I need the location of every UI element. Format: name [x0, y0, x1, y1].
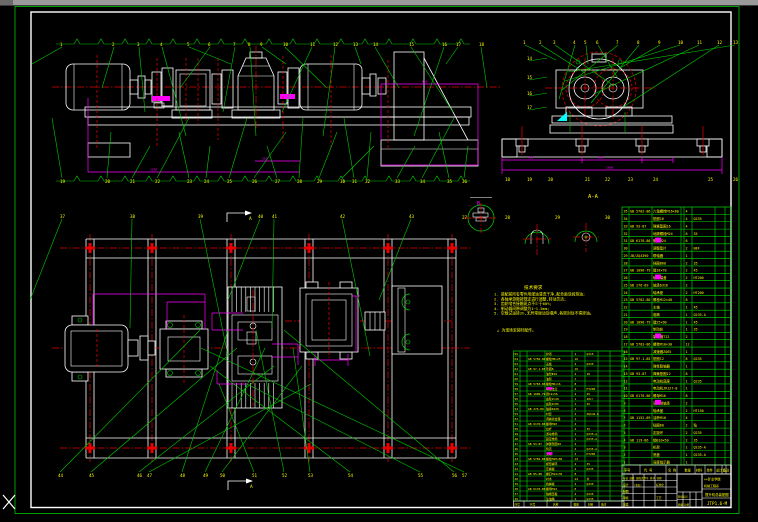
bom-header-cell: 数量 [685, 467, 692, 472]
bom-cell: 弹性联轴器 [653, 364, 671, 369]
balloon-number: 29 [555, 215, 561, 220]
bom-cell: 联轴器 [653, 253, 664, 258]
bom-cell: 轴承6316 [653, 282, 668, 287]
leader-line [32, 47, 62, 64]
dim-text: 650 [422, 80, 428, 84]
bom-header-cell: 备注 [723, 467, 730, 472]
leader-line [319, 132, 337, 178]
detail-b-label: B [477, 201, 480, 207]
leader-line [344, 118, 354, 178]
dim-text: 1250 [150, 168, 157, 172]
technical-notes: 技术要求1. 装配前所有零件用煤油清洗干净,配合面涂润滑油;2. 各轴承游隙按规… [494, 284, 594, 333]
bom-cell: GB 5782-86 [630, 298, 650, 302]
bom-cell: 21 [624, 313, 628, 317]
leader-line [355, 47, 361, 64]
balloon-number: 22 [155, 179, 161, 184]
bom-cell: 16 [575, 367, 579, 371]
bom-header-cell: 数量 [574, 502, 580, 506]
title-block-cell: 审核 [623, 496, 629, 500]
leader-line [285, 47, 327, 88]
bom-cell: 油管Φ10 [546, 371, 557, 376]
bom-cell: 制动轮 [653, 327, 664, 332]
title-block-cell: 阶段标记 [678, 495, 688, 499]
bom-cell: HT150 [694, 409, 704, 413]
leader-line [411, 47, 453, 112]
leader-line [367, 132, 371, 178]
bom-cell: 螺栓M10×30 [653, 341, 672, 346]
section-label: A-A [588, 194, 599, 200]
bom-cell: 螺钉M12×30 [546, 471, 562, 476]
cad-viewport[interactable]: A-A B [0, 0, 758, 522]
bom-cell: 螺栓M12×40 [653, 297, 672, 302]
bom-cell: 2 [686, 409, 688, 413]
balloon-number: 57 [462, 473, 468, 478]
bom-cell: 楔形绳环 [546, 461, 558, 466]
balloon-number: 14 [373, 42, 379, 47]
bom-cell: 37 [515, 492, 519, 496]
balloon-number: 30 [340, 179, 346, 184]
bom-cell: GB 1096-79 [630, 320, 650, 324]
bom-cell: 2 [575, 407, 577, 411]
title-block-cell: (签名) [634, 483, 642, 487]
bom-cell: 51 [515, 422, 519, 426]
bom-cell: 28 [624, 261, 628, 265]
bom-cell: 2 [575, 462, 577, 466]
bom-cell: 35 [587, 427, 591, 431]
bom-cell: 10 [587, 372, 591, 376]
end-section-view: A-A [502, 52, 722, 200]
bom-cell: 1 [686, 446, 688, 450]
bom-header-cell: 材料 [588, 502, 594, 506]
svg-text:A: A [250, 484, 253, 490]
bom-cell: 垫圈12 [653, 356, 664, 361]
bom-cell: 39 [515, 482, 519, 486]
balloon-number: 22 [605, 177, 611, 182]
balloon-number: 23 [187, 179, 193, 184]
balloon-number: 29 [317, 179, 323, 184]
bom-cell: 螺栓M8×25 [546, 356, 561, 361]
bom-cell: 2 [686, 276, 688, 280]
section-arrow-top: A [227, 211, 252, 223]
bom-cell: 1 [686, 379, 688, 383]
bom-cell: 4 [686, 217, 688, 221]
bom-cell: 1 [686, 350, 688, 354]
bom-cell: 59 [515, 382, 519, 386]
bom-cell: 2 [575, 392, 577, 396]
bom-cell: Q235-A [587, 447, 598, 451]
bom-cell: 电动机JR127-8 [653, 386, 677, 391]
bom-cell: 8 [686, 357, 688, 361]
bom-cell: 45 [515, 452, 519, 456]
dim-text: 800 [598, 156, 604, 160]
bom-cell: 2 [686, 283, 688, 287]
balloon-number: 3 [553, 40, 556, 45]
bom-cell: 2 [575, 482, 577, 486]
bom-table-outline [622, 207, 731, 465]
bom-cell: 齿轮Z=85 [546, 401, 559, 406]
leader-line [481, 47, 487, 88]
bom-cell: 18 [624, 335, 628, 339]
balloon-number: 16 [527, 91, 533, 96]
leader-line [299, 118, 303, 178]
bom-cell: 油泵 [546, 376, 552, 381]
bom-cell: 减速器ZQ65 [653, 349, 671, 354]
title-block-cell: JTP1.6-M [707, 501, 728, 506]
bom-cell: 40Cr [587, 397, 594, 401]
balloon-number: 18 [505, 177, 511, 182]
bom-cell: 16 [575, 357, 579, 361]
title-block-cell: 工艺 [656, 496, 662, 500]
balloon-number: 52 [282, 473, 288, 478]
bom-cell: 2 [686, 401, 688, 405]
bom-cell: GB 119-86 [630, 438, 648, 442]
bom-cell: 35 [694, 438, 698, 442]
bom-cell: 六角螺栓M16×60 [653, 209, 679, 214]
bom-cell: 62 [515, 367, 519, 371]
bom-cell: 42 [515, 467, 519, 471]
bom-cell: Q235-A [694, 446, 706, 450]
bom-cell: 65 [515, 352, 519, 356]
balloon-number: 41 [272, 214, 278, 219]
bom-header-cell: 序号 [624, 467, 630, 472]
bom-cell: 38 [515, 487, 519, 491]
material-box [677, 474, 702, 492]
bom-cell: Q235 [694, 357, 702, 361]
title-block-cell: 制图 [623, 490, 629, 494]
bom-cell: Q235 [587, 467, 594, 471]
bom-cell: 48 [515, 437, 519, 441]
leader-line [180, 47, 210, 88]
balloon-number: 55 [418, 473, 424, 478]
bom-cell: 轴承6220 [546, 406, 559, 411]
balloon-number: 50 [220, 473, 226, 478]
bom-cell: 压绳板 [546, 466, 555, 471]
balloon-number: 24 [653, 177, 659, 182]
leader-line [422, 118, 454, 178]
balloon-number: 18 [479, 42, 485, 47]
balloon-number: 2 [539, 40, 542, 45]
bom-cell: 8 [575, 487, 577, 491]
bom-cell: 19 [624, 328, 628, 332]
balloon-number: 40 [258, 214, 264, 219]
bom-cell: 2 [575, 492, 577, 496]
balloon-number: 27 [275, 179, 281, 184]
bom-cell: 筒壳 [546, 446, 552, 451]
balloon-number: 5 [584, 40, 587, 45]
bom-cell: 1 [686, 387, 688, 391]
bom-cell: 机架 [653, 445, 660, 450]
bom-cell: 注油嘴 [546, 496, 555, 501]
balloon-number: 13 [353, 42, 359, 47]
bom-cell: 12 [686, 342, 690, 346]
bom-cell: 56 [515, 397, 519, 401]
cad-application-window: A-A B [0, 0, 758, 522]
bom-cell: Q235 [694, 217, 702, 221]
bom-cell: Q235-A [694, 453, 706, 457]
balloon-number: 17 [527, 105, 533, 110]
dim-text: 1600 [606, 166, 613, 170]
bom-cell: 挡圈B60 [653, 260, 666, 265]
bom-cell: 固定卷筒 [546, 436, 558, 441]
bom-cell: 35 [587, 462, 591, 466]
bom-cell: 6 [686, 232, 688, 236]
bom-cell: GB 85-88 [528, 472, 542, 476]
bom-cell: 盖板 [546, 361, 552, 366]
leader-line [375, 47, 399, 88]
bom-cell: 4 [575, 467, 577, 471]
bom-cell: GB 1152-89 [630, 416, 650, 420]
bom-cell: 20 [624, 320, 628, 324]
leader-line [397, 146, 415, 178]
leader-line [130, 219, 132, 328]
leader-line [623, 45, 719, 107]
balloon-number: 11 [310, 42, 316, 47]
detail-circle-b: B [464, 198, 498, 234]
balloon-number: 38 [130, 214, 136, 219]
bom-cell: GB 5782-86 [528, 357, 546, 361]
bom-cell: 2 [686, 291, 688, 295]
plan-view: A A [52, 211, 470, 491]
balloon-number: 21 [585, 177, 591, 182]
balloon-number: 42 [340, 214, 346, 219]
detail-views: B [464, 198, 599, 256]
balloon-number: 43 [409, 214, 415, 219]
balloon-number: 35 [447, 179, 453, 184]
window-titlebar-strip [0, 0, 758, 6]
bom-cell: 1 [686, 320, 688, 324]
bom-cell: Q235 [694, 431, 702, 435]
balloon-number: 13 [733, 40, 739, 45]
bom-cell: 1 [686, 460, 688, 464]
bom-cell: 45 [694, 320, 698, 324]
bom-cell: 54 [515, 407, 519, 411]
balloon-number: 49 [203, 473, 209, 478]
bom-cell: 螺母M16 [653, 393, 666, 398]
balloon-number: 12 [717, 40, 723, 45]
bom-cell: GB 5782-86 [630, 210, 650, 214]
bom-cell: Q235 [587, 362, 594, 366]
bom-cell: 弹簧垫圈20 [546, 441, 561, 446]
balloon-number: 34 [420, 179, 426, 184]
balloon-number: 9 [658, 40, 661, 45]
bom-cell: 8 [575, 472, 577, 476]
bom-cell: 定距环 [653, 430, 664, 435]
bom-cell: 1 [575, 352, 577, 356]
bom-cell: 22 [624, 306, 628, 310]
bom-cell: 32 [624, 232, 628, 236]
bom-cell: 键25×90 [653, 319, 667, 324]
bom-cell: 毡圈60 [653, 423, 664, 428]
bom-cell: 58 [515, 387, 519, 391]
bom-header-cell: 名 称 [668, 467, 677, 472]
bom-cell: 木 [587, 476, 590, 481]
title-block-cell: 批准 [623, 503, 629, 507]
bom-cell: 底盘 [653, 452, 660, 457]
bom-cell: 调绳离合器 [546, 416, 561, 421]
bom-cell: 护罩 [546, 351, 552, 356]
leader-line [52, 118, 62, 178]
bom-cell: 29 [624, 254, 628, 258]
bom-cell: 55 [515, 402, 519, 406]
bom-cell: 1 [575, 437, 577, 441]
leader-line [555, 45, 614, 86]
leader-line [598, 45, 617, 77]
bom-cell: 17 [624, 342, 628, 346]
bom-header [622, 465, 731, 474]
balloon-number: 39 [198, 214, 204, 219]
bom-cell: 8 [686, 298, 688, 302]
balloon-number: 10 [283, 42, 289, 47]
bom-header-cell: 代号 [530, 502, 536, 506]
bom-cell: HT200 [694, 276, 704, 280]
dim-text: 400 [528, 156, 534, 160]
bom-cell: 1 [686, 306, 688, 310]
balloon-number: 47 [147, 473, 153, 478]
bom-cell: 1 [575, 377, 577, 381]
bom-cell: 8 [575, 382, 577, 386]
bom-cell: HT200 [587, 387, 596, 391]
bom-cell: 53 [515, 412, 519, 416]
bom-cell: Q215 [587, 352, 594, 356]
anchor-bolts [516, 126, 709, 155]
bom-cell: Q235 [587, 482, 594, 486]
bom-cell: 2 [575, 412, 577, 416]
bom-cell: 2 [686, 335, 688, 339]
bom-cell: 1 [686, 365, 688, 369]
bom-cell: 33 [624, 224, 628, 228]
bom-cell: 4 [686, 416, 688, 420]
balloon-number: 4 [573, 40, 576, 45]
leader-line [157, 118, 189, 178]
bom-cell: 衬木 [546, 476, 552, 481]
bom-cell: 45 [587, 402, 591, 406]
balloon-number: 15 [409, 42, 415, 47]
bom-cell: 垫圈16 [653, 216, 664, 221]
bom-cell: 57 [515, 392, 519, 396]
leader-line [262, 47, 286, 64]
bom-cell: 63 [515, 362, 519, 366]
bom-cell: 6 [686, 239, 688, 243]
bom-cell: 43 [515, 462, 519, 466]
bom-cell: 46 [515, 447, 519, 451]
balloon-number: 28 [505, 215, 511, 220]
title-block: 标记 处数 更改文件号 签字 日期设计(签名)标准化制图审核工艺批准阶段标记质量… [622, 474, 731, 507]
bom-cell: 轴端压板 [546, 491, 558, 496]
bom-cell: 油杯M10 [653, 415, 666, 420]
bom-cell: 2 [686, 424, 688, 428]
bom-cell: 23 [624, 298, 628, 302]
leader-line [139, 366, 274, 472]
balloon-number: 23 [628, 177, 634, 182]
leader-line [189, 47, 231, 64]
bom-cell: 64 [515, 357, 519, 361]
bom-cell: HT200 [694, 291, 704, 295]
bom-cell: 拉杆 [546, 426, 552, 431]
crosshair-cursor[interactable] [3, 495, 15, 509]
balloon-number: 10 [678, 40, 684, 45]
bom-cell: 垫圈8 [546, 366, 554, 371]
bom-cell: GB 6170-86 [528, 422, 546, 426]
bom-cell: 2 [686, 431, 688, 435]
balloon-number: 26 [733, 177, 739, 182]
bom-cell: GB 97.1-85 [630, 357, 650, 361]
bom-cell: 35 [694, 232, 698, 236]
bom-cell: 销B10×50 [653, 437, 669, 442]
bom-cell: GB 97.1-85 [528, 367, 546, 371]
balloon-number: 16 [442, 42, 448, 47]
title-block-cell: 标准化 [656, 483, 664, 487]
bom-cell: 25 [624, 283, 628, 287]
bom-cell: 24 [624, 291, 628, 295]
bom-cell: 螺母M12 [546, 486, 557, 491]
bom-cell: 1 [575, 397, 577, 401]
bom-cell: 52 [515, 417, 519, 421]
bom-cell: 挡绳板 [546, 481, 555, 486]
balloon-number: 21 [130, 179, 136, 184]
balloon-number: 48 [180, 473, 186, 478]
title-block-cell: 设计 [623, 483, 629, 487]
bom-cell: 36 [515, 497, 519, 501]
leader-line [282, 47, 312, 112]
leader-line [201, 348, 464, 472]
bom-cell: 50 [515, 427, 519, 431]
leader-line [162, 47, 186, 136]
bom-cell: JB/ZQ4390 [630, 254, 648, 258]
balloon-number: 53 [308, 473, 314, 478]
balloon-number: 20 [548, 177, 554, 182]
bom-cell: GB 93-87 [630, 372, 646, 376]
bom-cell: 49 [515, 432, 519, 436]
bom-cell: GB 6170-86 [630, 239, 650, 243]
bom-cell: 螺栓M6×16 [546, 381, 561, 386]
bom-cell: 34 [624, 217, 628, 221]
bom-cell: 1 [686, 453, 688, 457]
balloon-number: 28 [297, 179, 303, 184]
bom-cell: 主轴 [653, 305, 660, 310]
bom-cell: GB 5783-86 [528, 382, 546, 386]
bom-cell: GB 93-87 [528, 442, 542, 446]
leader-line [250, 47, 256, 136]
bom-cell: 1 [575, 402, 577, 406]
bom-cell: 齿轮Z=20 [546, 396, 559, 401]
bom-cell: Q235-A [587, 432, 598, 436]
bom-cell: 08F [694, 247, 700, 251]
balloon-number: 7 [616, 40, 619, 45]
bom-cell: 2 [575, 372, 577, 376]
bom-cell: 2 [686, 438, 688, 442]
notes-title: 技术要求 [524, 284, 543, 291]
leader-line [541, 45, 585, 73]
leader-line [439, 132, 449, 178]
balloon-number: 30 [605, 215, 611, 220]
balloon-number: 25 [708, 177, 714, 182]
balloon-number: 26 [252, 179, 258, 184]
bom-cell: 35 [694, 261, 698, 265]
bom-cell: 键12×56 [546, 391, 558, 396]
bom-cell: GB 5782-86 [528, 457, 546, 461]
bom-cell: 螺栓M20×80 [546, 456, 562, 461]
section-arrow-bottom: A [228, 479, 253, 491]
bom-cell: 卷筒 [653, 312, 660, 317]
balloon-number: 37 [60, 214, 66, 219]
bom-cell: 8 [686, 372, 688, 376]
bom-cell: Q235-A [587, 437, 598, 441]
balloon-number: 20 [105, 179, 111, 184]
bom-header-cell: 材料 [696, 467, 703, 472]
leader-line [464, 146, 468, 178]
balloon-number: 51 [252, 473, 258, 478]
leader-line [132, 146, 150, 178]
